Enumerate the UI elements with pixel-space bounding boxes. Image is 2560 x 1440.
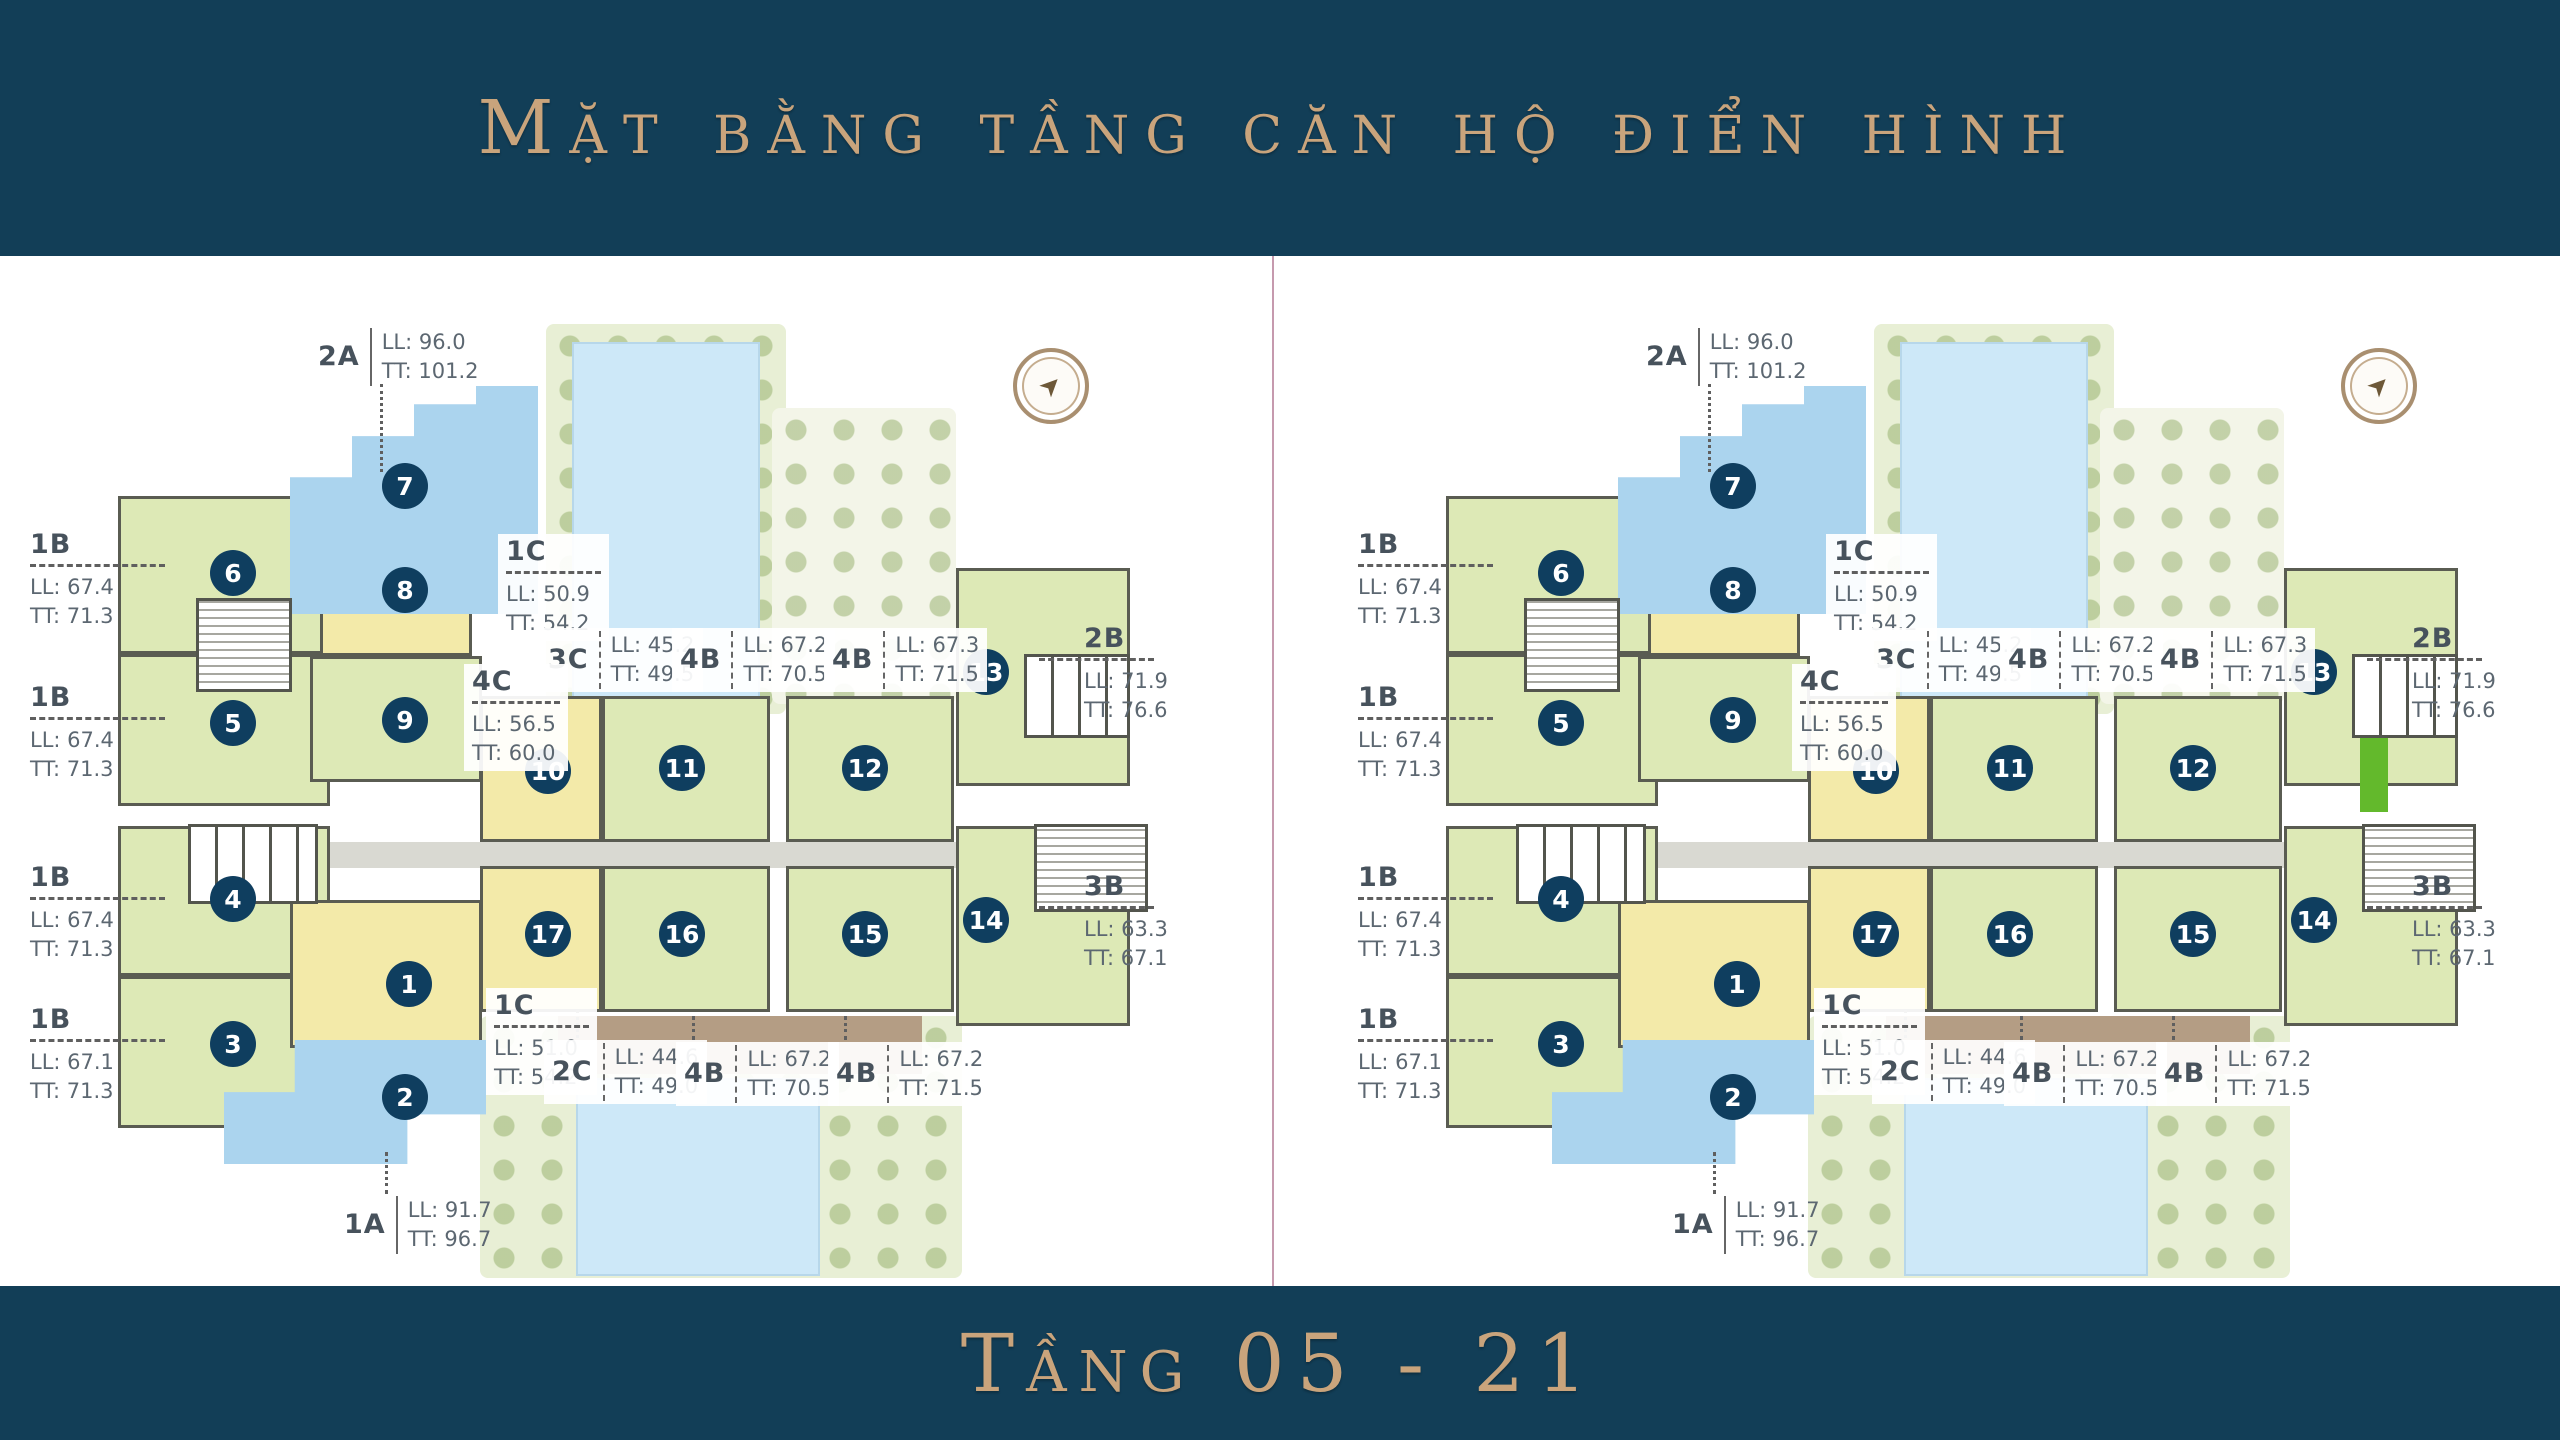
unit-area-values: LL: 67.4TT: 71.3 xyxy=(30,906,165,964)
area-label-3B: 3BLL: 63.3TT: 67.1 xyxy=(1084,872,1168,973)
leader-line xyxy=(2020,1016,2023,1040)
area-label-1B: 1BLL: 67.4TT: 71.3 xyxy=(30,683,165,784)
unit-number-badge-17: 17 xyxy=(1853,911,1899,957)
unit-area-values: LL: 67.1TT: 71.3 xyxy=(30,1048,165,1106)
area-label-2A: 2ALL: 96.0TT: 101.2 xyxy=(1646,328,1807,386)
compass-icon: ➤ xyxy=(2341,348,2417,424)
unit-area-values: LL: 96.0TT: 101.2 xyxy=(382,328,479,386)
leader-line xyxy=(2367,906,2482,909)
unit-number-badge-12: 12 xyxy=(842,745,888,791)
unit-area-values: LL: 63.3TT: 67.1 xyxy=(1084,915,1168,973)
floor-plan-left: 12345678910111213141516172ALL: 96.0TT: 1… xyxy=(28,268,1228,1280)
unit-number-badge-9: 9 xyxy=(382,697,428,743)
area-label-4B: 4BLL: 67.2TT: 70.5 xyxy=(672,628,835,692)
unit-type-label: 4B xyxy=(2160,645,2201,675)
leader-line xyxy=(1713,1152,1716,1194)
unit-type-label: 4B xyxy=(684,1059,725,1089)
unit-type-label: 1C xyxy=(494,991,589,1021)
label-separator xyxy=(1931,1043,1933,1101)
unit-number-badge-16: 16 xyxy=(1987,911,2033,957)
unit-number-badge-2: 2 xyxy=(382,1074,428,1120)
label-separator xyxy=(731,631,733,689)
unit-type-label: 1B xyxy=(1358,1005,1493,1035)
unit-area-values: LL: 67.2TT: 70.5 xyxy=(747,1045,831,1103)
label-separator xyxy=(1698,328,1700,386)
unit-area-values: LL: 91.7TT: 96.7 xyxy=(408,1196,492,1254)
unit-type-label: 1A xyxy=(1672,1210,1714,1240)
unit-number-badge-8: 8 xyxy=(1710,567,1756,613)
area-label-1A: 1ALL: 91.7TT: 96.7 xyxy=(344,1196,492,1254)
unit-type-label: 4C xyxy=(472,667,560,697)
unit-type-label: 4B xyxy=(2012,1059,2053,1089)
unit-type-label: 3B xyxy=(2412,872,2496,902)
area-label-4C: 4CLL: 56.5TT: 60.0 xyxy=(464,664,568,771)
area-label-1B: 1BLL: 67.4TT: 71.3 xyxy=(1358,530,1493,631)
area-label-1B: 1BLL: 67.1TT: 71.3 xyxy=(30,1005,165,1106)
leader-line xyxy=(30,1039,165,1042)
unit-type-label: 2C xyxy=(552,1057,593,1087)
unit-type-label: 1C xyxy=(506,537,601,567)
unit-area-values: LL: 71.9TT: 76.6 xyxy=(1084,667,1168,725)
unit-area-values: LL: 67.4TT: 71.3 xyxy=(30,726,165,784)
unit-type-label: 4B xyxy=(680,645,721,675)
unit-number-badge-11: 11 xyxy=(659,745,705,791)
unit-type-label: 1B xyxy=(1358,863,1493,893)
label-separator xyxy=(1724,1196,1726,1254)
area-label-1B: 1BLL: 67.4TT: 71.3 xyxy=(30,530,165,631)
unit-type-label: 1C xyxy=(1822,991,1917,1021)
area-label-1B: 1BLL: 67.4TT: 71.3 xyxy=(30,863,165,964)
label-separator xyxy=(1927,631,1929,689)
leader-line xyxy=(1358,717,1493,720)
leader-line xyxy=(494,1025,589,1028)
compass-icon: ➤ xyxy=(1013,348,1089,424)
leader-line xyxy=(1039,906,1154,909)
leader-line xyxy=(2172,1016,2175,1040)
area-label-4B: 4BLL: 67.2TT: 70.5 xyxy=(2004,1042,2167,1106)
unit-area-values: LL: 56.5TT: 60.0 xyxy=(472,710,560,768)
unit-type-label: 1B xyxy=(1358,530,1493,560)
label-separator xyxy=(883,631,885,689)
unit-number-badge-6: 6 xyxy=(1538,550,1584,596)
unit-number-badge-3: 3 xyxy=(210,1021,256,1067)
unit-number-badge-3: 3 xyxy=(1538,1021,1584,1067)
unit-type-label: 2B xyxy=(2412,624,2496,654)
unit-type-label: 1A xyxy=(344,1210,386,1240)
unit-type-label: 3B xyxy=(1084,872,1168,902)
unit-area-values: LL: 67.4TT: 71.3 xyxy=(1358,726,1493,784)
leader-line xyxy=(30,717,165,720)
unit-number-badge-14: 14 xyxy=(963,897,1009,943)
unit-number-badge-9: 9 xyxy=(1710,697,1756,743)
leader-line xyxy=(1358,897,1493,900)
unit-type-label: 2A xyxy=(318,342,360,372)
label-separator xyxy=(396,1196,398,1254)
area-label-1A: 1ALL: 91.7TT: 96.7 xyxy=(1672,1196,1820,1254)
label-separator xyxy=(603,1043,605,1101)
unit-number-badge-1: 1 xyxy=(1714,961,1760,1007)
label-separator xyxy=(2063,1045,2065,1103)
stair-core xyxy=(196,598,292,692)
unit-area-values: LL: 91.7TT: 96.7 xyxy=(1736,1196,1820,1254)
plans-divider xyxy=(1272,256,1274,1286)
leader-line xyxy=(380,384,383,472)
leader-line xyxy=(1358,564,1493,567)
unit-area-values: LL: 67.1TT: 71.3 xyxy=(1358,1048,1493,1106)
leader-line xyxy=(1834,571,1929,574)
unit-number-badge-4: 4 xyxy=(1538,876,1584,922)
unit-area-values: LL: 67.2TT: 71.5 xyxy=(899,1045,983,1103)
unit-number-badge-14: 14 xyxy=(2291,897,2337,943)
unit-number-badge-1: 1 xyxy=(386,961,432,1007)
unit-number-badge-6: 6 xyxy=(210,550,256,596)
unit-type-label: 1B xyxy=(30,863,165,893)
label-separator xyxy=(370,328,372,386)
leader-line xyxy=(1039,658,1154,661)
unit-type-label: 2A xyxy=(1646,342,1688,372)
unit-area-values: LL: 67.4TT: 71.3 xyxy=(1358,906,1493,964)
compass-needle-icon: ➤ xyxy=(2362,369,2396,403)
unit-type-label: 4C xyxy=(1800,667,1888,697)
unit-number-badge-7: 7 xyxy=(382,463,428,509)
leader-line xyxy=(1358,1039,1493,1042)
floor-plan-right: 12345678910111213141516172ALL: 96.0TT: 1… xyxy=(1356,268,2556,1280)
leader-line xyxy=(1708,384,1711,472)
leader-line xyxy=(506,571,601,574)
unit-1 xyxy=(290,900,482,1048)
label-separator xyxy=(2215,1045,2217,1103)
highlight-marker xyxy=(2360,738,2388,812)
leader-line xyxy=(1822,1025,1917,1028)
unit-area-values: LL: 56.5TT: 60.0 xyxy=(1800,710,1888,768)
unit-type-label: 4B xyxy=(2164,1059,2205,1089)
area-label-3B: 3BLL: 63.3TT: 67.1 xyxy=(2412,872,2496,973)
unit-type-label: 1B xyxy=(30,530,165,560)
unit-1 xyxy=(1618,900,1810,1048)
unit-number-badge-8: 8 xyxy=(382,567,428,613)
unit-area-values: LL: 96.0TT: 101.2 xyxy=(1710,328,1807,386)
area-label-1B: 1BLL: 67.4TT: 71.3 xyxy=(1358,683,1493,784)
label-separator xyxy=(887,1045,889,1103)
unit-type-label: 4B xyxy=(2008,645,2049,675)
unit-area-values: LL: 67.2TT: 71.5 xyxy=(2227,1045,2311,1103)
unit-area-values: LL: 67.4TT: 71.3 xyxy=(30,573,165,631)
label-separator xyxy=(2059,631,2061,689)
unit-area-values: LL: 63.3TT: 67.1 xyxy=(2412,915,2496,973)
area-label-1C: 1CLL: 50.9TT: 54.2 xyxy=(1826,534,1937,641)
unit-area-values: LL: 67.2TT: 70.5 xyxy=(743,631,827,689)
unit-number-badge-11: 11 xyxy=(1987,745,2033,791)
leader-line xyxy=(472,701,560,704)
unit-area-values: LL: 71.9TT: 76.6 xyxy=(2412,667,2496,725)
area-label-4B: 4BLL: 67.3TT: 71.5 xyxy=(2152,628,2315,692)
unit-number-badge-4: 4 xyxy=(210,876,256,922)
unit-number-badge-5: 5 xyxy=(1538,700,1584,746)
leader-line xyxy=(1800,701,1888,704)
pool xyxy=(576,1078,820,1276)
leader-line xyxy=(30,564,165,567)
leader-line xyxy=(692,1016,695,1040)
unit-area-values: LL: 67.4TT: 71.3 xyxy=(1358,573,1493,631)
area-label-4B: 4BLL: 67.3TT: 71.5 xyxy=(824,628,987,692)
unit-area-values: LL: 67.2TT: 70.5 xyxy=(2075,1045,2159,1103)
area-label-4B: 4BLL: 67.2TT: 70.5 xyxy=(2000,628,2163,692)
unit-type-label: 1B xyxy=(30,683,165,713)
unit-type-label: 1B xyxy=(1358,683,1493,713)
compass-needle-icon: ➤ xyxy=(1034,369,1068,403)
leader-line xyxy=(844,1016,847,1040)
header-band: Mặt bằng tầng căn hộ điển hình xyxy=(0,0,2560,256)
unit-number-badge-17: 17 xyxy=(525,911,571,957)
leader-line xyxy=(30,897,165,900)
area-label-1C: 1CLL: 50.9TT: 54.2 xyxy=(498,534,609,641)
label-separator xyxy=(599,631,601,689)
unit-number-badge-5: 5 xyxy=(210,700,256,746)
footer-band: Tầng 05 - 21 xyxy=(0,1286,2560,1440)
area-label-2B: 2BLL: 71.9TT: 76.6 xyxy=(1084,624,1168,725)
area-label-4B: 4BLL: 67.2TT: 71.5 xyxy=(2156,1042,2319,1106)
leader-line xyxy=(385,1152,388,1194)
unit-number-badge-15: 15 xyxy=(2170,911,2216,957)
unit-area-values: LL: 67.3TT: 71.5 xyxy=(2223,631,2307,689)
area-label-1B: 1BLL: 67.1TT: 71.3 xyxy=(1358,1005,1493,1106)
label-separator xyxy=(2211,631,2213,689)
page-title: Mặt bằng tầng căn hộ điển hình xyxy=(478,85,2083,171)
label-separator xyxy=(735,1045,737,1103)
unit-area-values: LL: 67.3TT: 71.5 xyxy=(895,631,979,689)
unit-number-badge-12: 12 xyxy=(2170,745,2216,791)
unit-type-label: 4B xyxy=(832,645,873,675)
area-label-4B: 4BLL: 67.2TT: 70.5 xyxy=(676,1042,839,1106)
pool xyxy=(1904,1078,2148,1276)
unit-number-badge-16: 16 xyxy=(659,911,705,957)
unit-number-badge-15: 15 xyxy=(842,911,888,957)
area-label-1B: 1BLL: 67.4TT: 71.3 xyxy=(1358,863,1493,964)
unit-area-values: LL: 67.2TT: 70.5 xyxy=(2071,631,2155,689)
floor-range-title: Tầng 05 - 21 xyxy=(961,1317,1599,1410)
area-label-4B: 4BLL: 67.2TT: 71.5 xyxy=(828,1042,991,1106)
unit-type-label: 2C xyxy=(1880,1057,1921,1087)
area-label-2A: 2ALL: 96.0TT: 101.2 xyxy=(318,328,479,386)
unit-type-label: 1C xyxy=(1834,537,1929,567)
area-label-2B: 2BLL: 71.9TT: 76.6 xyxy=(2412,624,2496,725)
unit-type-label: 4B xyxy=(836,1059,877,1089)
unit-number-badge-2: 2 xyxy=(1710,1074,1756,1120)
unit-type-label: 2B xyxy=(1084,624,1168,654)
stair-core xyxy=(1524,598,1620,692)
leader-line xyxy=(2367,658,2482,661)
area-label-4C: 4CLL: 56.5TT: 60.0 xyxy=(1792,664,1896,771)
unit-number-badge-7: 7 xyxy=(1710,463,1756,509)
unit-type-label: 1B xyxy=(30,1005,165,1035)
